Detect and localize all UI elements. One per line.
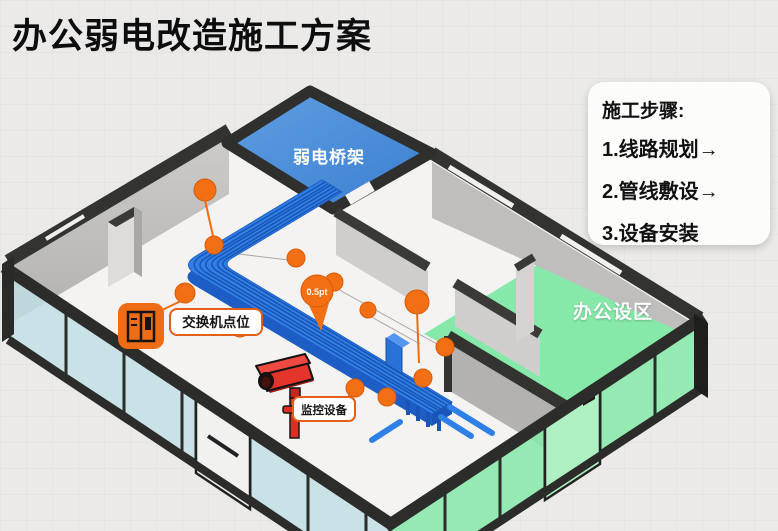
corner-post [2, 256, 14, 342]
step-item-2: 2.管线敷设→ [602, 175, 770, 204]
network-point-dot [436, 338, 454, 356]
cable-tray-zone-label: 弱电桥架 [293, 147, 365, 167]
page-title: 办公弱电改造施工方案 [12, 8, 372, 59]
camera-callout: 监控设备 [293, 397, 355, 421]
construction-steps-panel: 施工步骤: 1.线路规划→ 2.管线敷设→ 3.设备安装 [588, 82, 770, 245]
network-point-dot [378, 388, 396, 406]
camera-label: 监控设备 [301, 403, 347, 417]
network-point-dot [205, 236, 223, 254]
infographic-canvas: 弱电桥架 [0, 0, 778, 531]
step-item-3: 3.设备安装 [602, 217, 770, 246]
pin-label: 0.5pt [306, 287, 327, 297]
office-zone-label: 办公设区 [573, 300, 653, 323]
steps-heading: 施工步骤: [602, 96, 770, 123]
switch-point-label: 交换机点位 [182, 314, 250, 330]
network-point-dot [346, 379, 364, 397]
network-point-dot [405, 290, 429, 314]
network-point-dot [194, 179, 216, 201]
corner-post [694, 314, 708, 398]
network-point-dot [414, 369, 432, 387]
camera-lens-inner [262, 377, 271, 388]
pillar-wall-side [134, 207, 142, 277]
isometric-scene: 弱电桥架 [0, 0, 778, 531]
network-point-dot [360, 302, 376, 318]
network-point-dot [175, 283, 195, 303]
step-item-1: 1.线路规划→ [602, 133, 770, 162]
network-point-dot [287, 249, 305, 267]
